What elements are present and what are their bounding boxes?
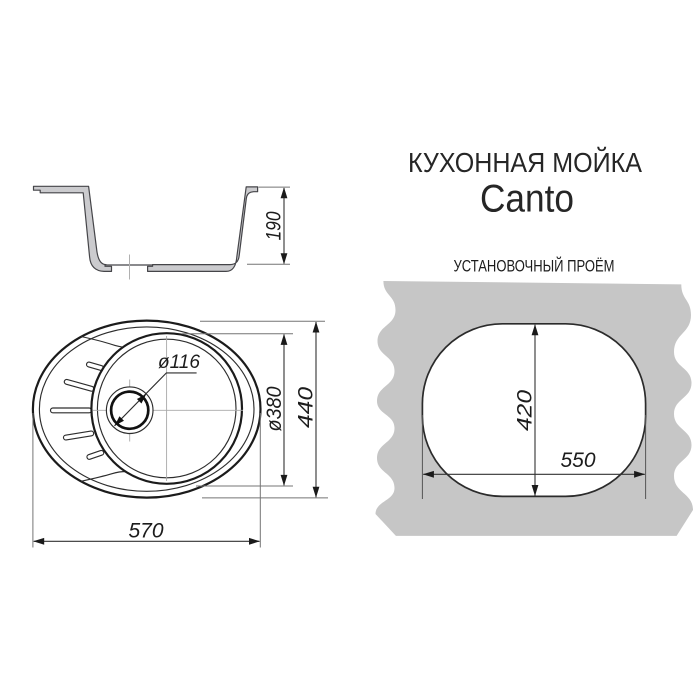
svg-text:ø116: ø116 (158, 352, 200, 373)
svg-text:Canto: Canto (480, 178, 574, 221)
svg-text:570: 570 (128, 520, 163, 543)
svg-text:440: 440 (295, 387, 318, 428)
svg-text:КУХОННАЯ МОЙКА: КУХОННАЯ МОЙКА (408, 147, 642, 178)
svg-text:420: 420 (514, 390, 537, 431)
svg-text:550: 550 (560, 449, 595, 472)
svg-text:190: 190 (263, 211, 286, 240)
svg-text:ø380: ø380 (263, 386, 286, 431)
svg-text:УСТАНОВОЧНЫЙ ПРОЁМ: УСТАНОВОЧНЫЙ ПРОЁМ (454, 257, 615, 276)
